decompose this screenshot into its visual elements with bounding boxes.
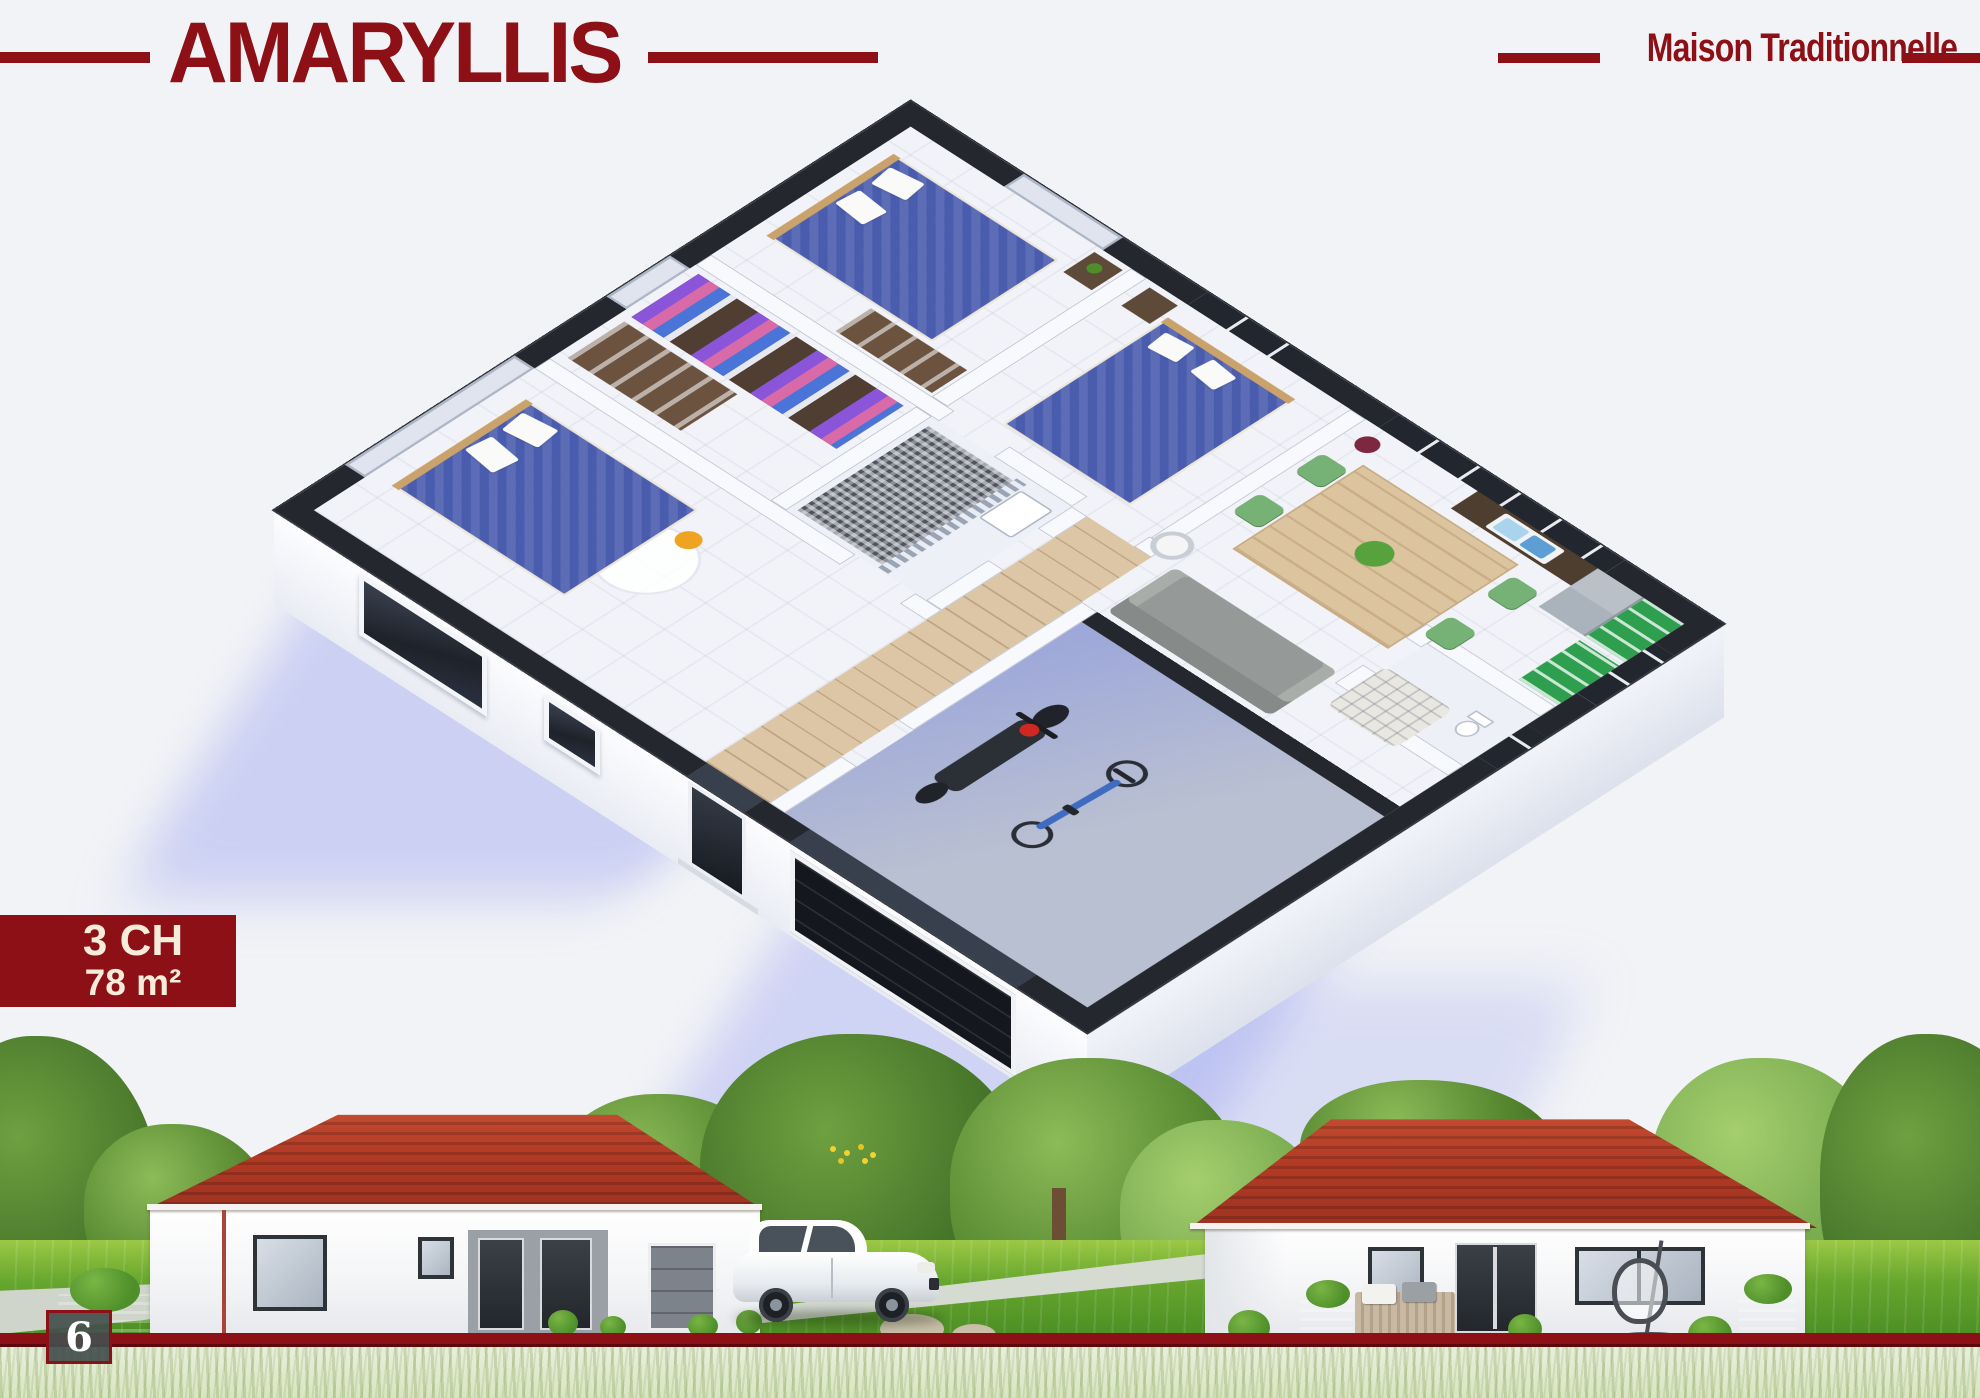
downspout	[222, 1210, 226, 1334]
floor-lamp	[1141, 526, 1203, 566]
roof-fascia	[147, 1204, 762, 1210]
car-wheel-hub	[770, 1299, 782, 1311]
surface-area: 78 m²	[58, 964, 208, 1003]
page-number-badge: 6	[46, 1310, 112, 1364]
hanging-egg-chair	[1612, 1258, 1668, 1324]
title-left-dash	[0, 52, 150, 63]
tagline-right-dash	[1902, 53, 1980, 63]
title-right-dash	[648, 52, 878, 63]
car	[733, 1218, 945, 1326]
bedroom-count: 3 CH	[58, 919, 208, 964]
planter-bush	[1744, 1274, 1792, 1304]
exterior-views-strip	[0, 1028, 1980, 1334]
front-door	[478, 1238, 524, 1330]
planter-grass	[70, 1268, 140, 1312]
vase	[1349, 433, 1386, 457]
car-grille	[929, 1278, 939, 1290]
front-window	[253, 1235, 327, 1311]
page-tagline: Maison Traditionnelle	[1608, 26, 1892, 71]
tagline-left-dash	[1498, 53, 1600, 63]
footer-grass-texture	[0, 1347, 1980, 1398]
page-number: 6	[65, 1314, 93, 1361]
red-divider-bar	[0, 1333, 1980, 1347]
roof-fascia	[1190, 1223, 1810, 1229]
spec-badge: 3 CH 78 m²	[0, 915, 236, 1007]
small-window	[418, 1237, 454, 1279]
yellow-flowers	[830, 1146, 836, 1152]
page-title: AMARYLLIS	[168, 4, 621, 103]
door-divider	[1493, 1247, 1497, 1329]
car-door-line	[831, 1258, 833, 1298]
sofa-cushion	[1362, 1284, 1396, 1304]
sofa-cushion	[1402, 1282, 1436, 1302]
car-headlight	[917, 1262, 935, 1273]
car-wheel-hub	[886, 1299, 898, 1311]
planter-bush	[1306, 1280, 1350, 1308]
